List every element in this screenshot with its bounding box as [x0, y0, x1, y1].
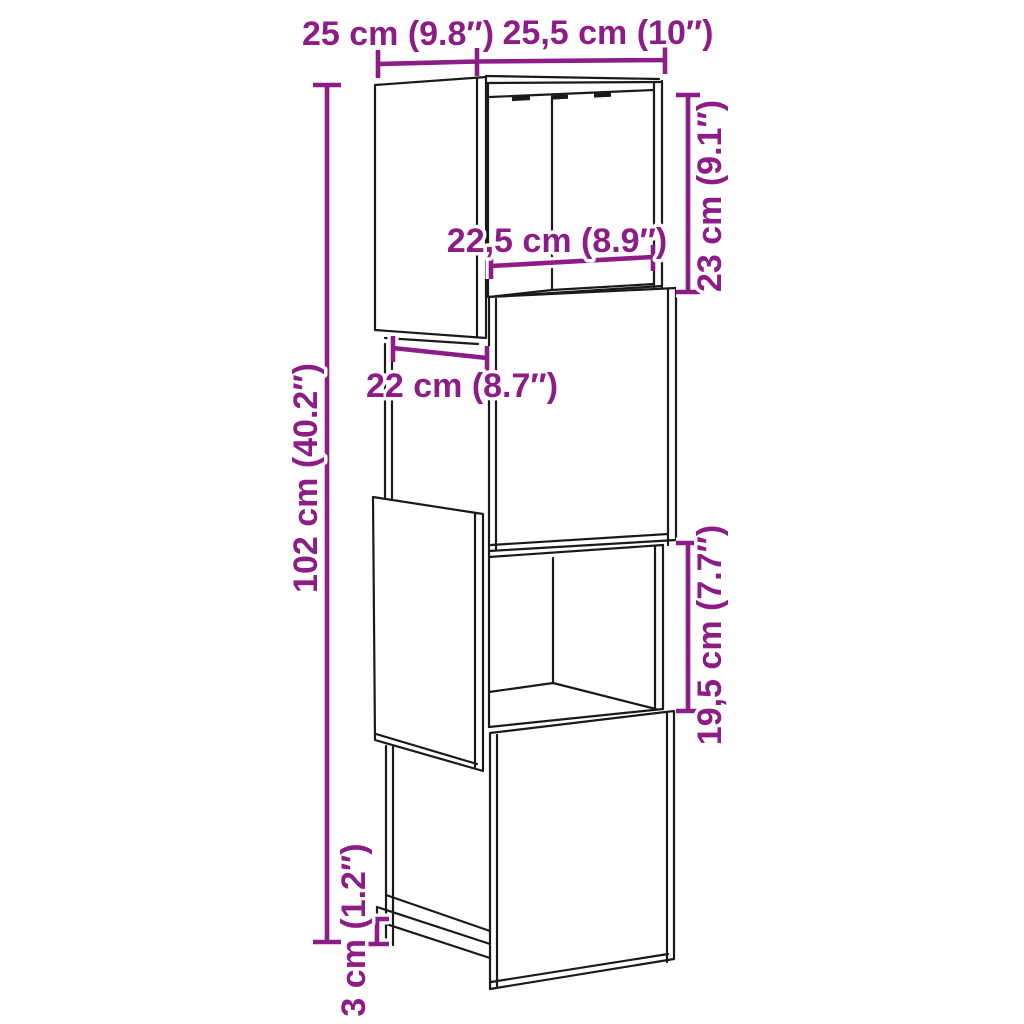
dim-label-left-height: 102 cm (40.2″) — [287, 363, 325, 593]
base-plinth — [377, 746, 490, 958]
dimension-diagram: 25 cm (9.8″) 25,5 cm (10″) 23 cm (9.1″) … — [0, 0, 1024, 1024]
cabinet-drawing — [373, 76, 676, 989]
dim-label-top-left: 25 cm (9.8″) — [302, 15, 494, 53]
door-face — [490, 711, 674, 989]
dim-label-right-lower: 19,5 cm (7.7″) — [691, 525, 729, 745]
cube3-side-panel — [373, 497, 483, 771]
door-face — [489, 288, 676, 551]
cube4-door — [490, 711, 674, 989]
cube1-side-panel — [375, 77, 486, 344]
dim-label-top-right: 25,5 cm (10″) — [503, 14, 714, 52]
dim-right-lower: 19,5 cm (7.7″) — [676, 525, 729, 745]
dim-bottom-left: 3 cm (1.2″) — [335, 843, 389, 1016]
dim-label-right-upper: 23 cm (9.1″) — [691, 100, 729, 292]
dim-label-inner-upper: 22,5 cm (8.9″) — [447, 222, 667, 260]
dim-label-inner-lower: 22 cm (8.7″) — [366, 367, 558, 405]
cube3-open-front — [489, 545, 663, 727]
dim-top-widths: 25 cm (9.8″) 25,5 cm (10″) — [302, 14, 714, 78]
diagram-svg: 25 cm (9.8″) 25,5 cm (10″) 23 cm (9.1″) … — [0, 0, 1024, 1024]
panel-face — [375, 77, 486, 338]
dim-right-upper: 23 cm (9.1″) — [676, 95, 729, 292]
dim-label-bottom-left: 3 cm (1.2″) — [335, 843, 373, 1016]
dim-left-height: 102 cm (40.2″) — [287, 85, 341, 942]
cube2-door — [489, 288, 676, 551]
panel-face — [373, 497, 483, 771]
